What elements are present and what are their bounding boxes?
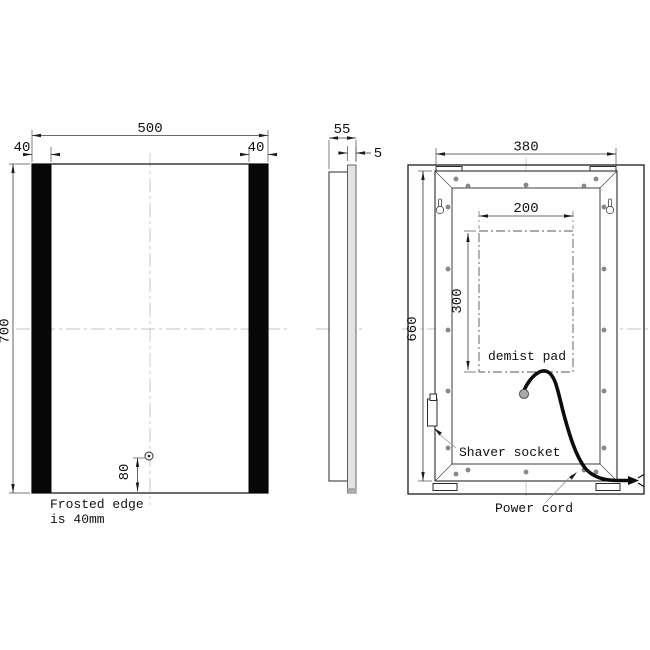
frame-width-label: 380 bbox=[513, 140, 538, 156]
front-view: 500 40 40 700 bbox=[0, 121, 288, 527]
pad-width-label: 200 bbox=[513, 201, 538, 217]
back-frame bbox=[435, 171, 617, 481]
shaver-socket bbox=[428, 394, 438, 426]
front-height-label: 700 bbox=[0, 318, 14, 343]
glass-thickness-label: 5 bbox=[374, 146, 382, 162]
dim-front-height: 700 bbox=[0, 164, 30, 493]
touch-sensor-icon bbox=[145, 452, 153, 460]
depth-label: 55 bbox=[334, 122, 351, 138]
sensor-offset-label: 80 bbox=[117, 464, 133, 481]
dim-frost-left: 40 bbox=[14, 140, 60, 162]
frosted-edge-note: Frosted edge is 40mm bbox=[50, 497, 144, 527]
hanging-plate-bottom-right bbox=[596, 484, 620, 491]
dim-frost-right: 40 bbox=[240, 140, 277, 162]
frosted-bar-left bbox=[32, 164, 52, 493]
technical-drawing-page: 500 40 40 700 bbox=[0, 0, 650, 650]
frosted-bar-right bbox=[249, 164, 269, 493]
front-width-label: 500 bbox=[137, 121, 162, 137]
side-frame-box bbox=[329, 172, 348, 481]
frame-height-label: 660 bbox=[405, 316, 421, 341]
hanging-plate-bottom-left bbox=[433, 484, 457, 491]
note-line1: Frosted edge bbox=[50, 497, 144, 512]
pad-height-label: 300 bbox=[450, 288, 466, 313]
demist-pad-label: demist pad bbox=[488, 349, 566, 364]
cord-connector bbox=[519, 389, 528, 398]
cord-plug bbox=[628, 475, 644, 487]
frost-right-label: 40 bbox=[248, 140, 265, 156]
dim-frame-height: 660 bbox=[405, 171, 432, 481]
dim-depth: 55 bbox=[329, 122, 356, 169]
dim-glass-thickness: 5 bbox=[338, 146, 382, 162]
shaver-socket-label: Shaver socket bbox=[459, 445, 560, 460]
power-cord-label: Power cord bbox=[495, 501, 573, 516]
side-glass-foot bbox=[348, 488, 357, 493]
mirror-drawing: 500 40 40 700 bbox=[0, 0, 650, 650]
dim-sensor-offset: 80 bbox=[117, 458, 145, 492]
frost-left-label: 40 bbox=[14, 140, 31, 156]
side-view: 55 5 bbox=[316, 122, 382, 493]
note-line2: is 40mm bbox=[50, 512, 105, 527]
side-glass-panel bbox=[348, 165, 357, 493]
back-view: demist pad 380 660 200 bbox=[402, 140, 648, 517]
